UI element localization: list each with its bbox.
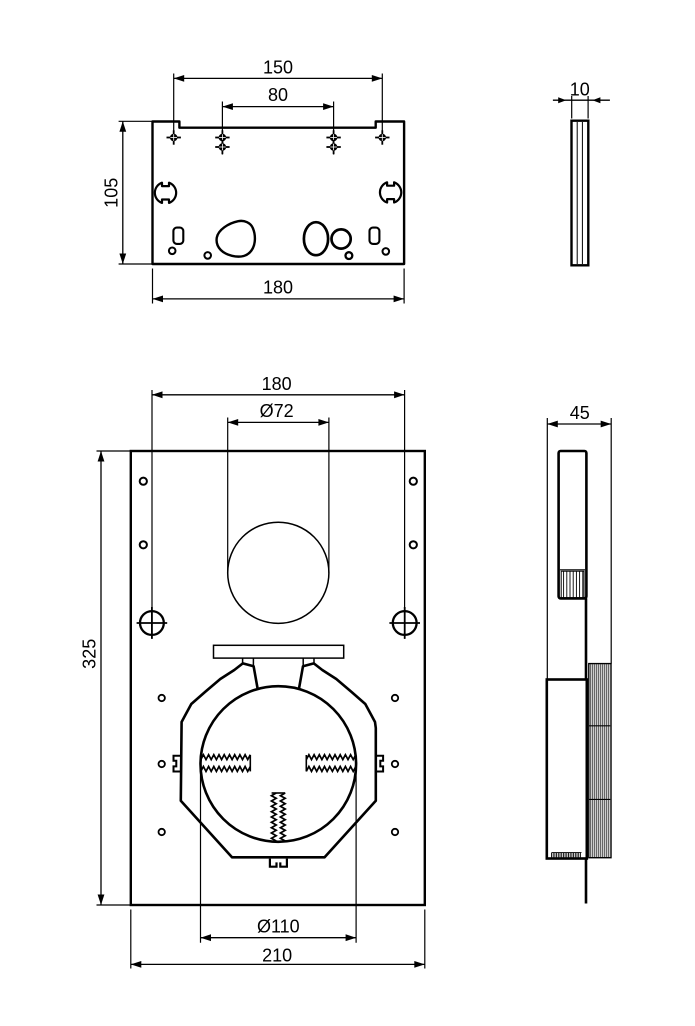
svg-text:325: 325	[80, 639, 100, 669]
svg-text:45: 45	[570, 403, 590, 423]
svg-text:210: 210	[262, 946, 292, 966]
svg-text:150: 150	[263, 57, 293, 77]
svg-text:180: 180	[263, 277, 293, 297]
svg-text:10: 10	[570, 79, 590, 99]
svg-text:105: 105	[102, 178, 122, 208]
svg-text:Ø110: Ø110	[257, 916, 300, 936]
svg-text:180: 180	[262, 374, 292, 394]
svg-text:80: 80	[268, 85, 288, 105]
svg-text:Ø72: Ø72	[260, 401, 294, 421]
